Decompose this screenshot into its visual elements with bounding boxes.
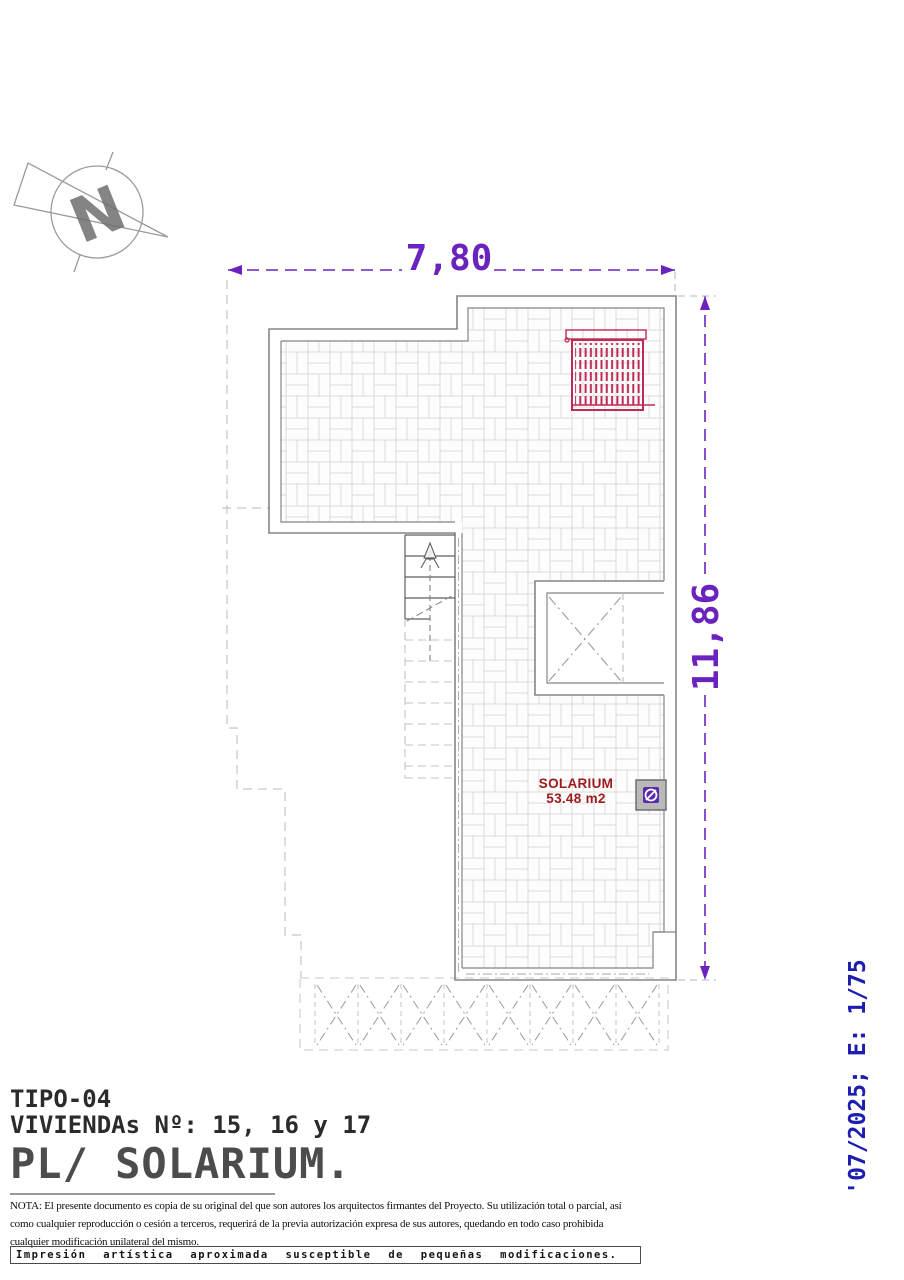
legal-note-line: como cualquier reproducción o cesión a t…	[10, 1216, 622, 1234]
legal-note: NOTA: El presente documento es copia de …	[10, 1198, 622, 1251]
dimension-height-label: 11,86	[686, 583, 727, 691]
type-label: TIPO-04	[10, 1086, 371, 1112]
disclaimer-text: Impresión artística aproximada susceptib…	[16, 1249, 618, 1261]
dimension-width: 7,80	[228, 238, 675, 294]
room-name: SOLARIUM	[539, 776, 613, 791]
north-arrow-icon: N	[14, 152, 168, 272]
title-rule	[10, 1193, 275, 1195]
disclaimer-bar: Impresión artística aproximada susceptib…	[10, 1246, 641, 1264]
legal-note-line: NOTA: El presente documento es copia de …	[10, 1198, 622, 1216]
plan-title: PL/ SOLARIUM.	[10, 1142, 371, 1186]
stairs	[405, 535, 455, 778]
room-label: SOLARIUM 53.48 m2	[539, 776, 613, 806]
floor-plan-sheet: 7,80 11,86 N SOLARIUM 53.48 m2 TIPO-04	[0, 0, 904, 1280]
dimension-width-label: 7,80	[406, 238, 493, 279]
north-letter: N	[60, 171, 135, 258]
room-area: 53.48 m2	[546, 791, 605, 806]
drain-icon	[636, 780, 666, 810]
trellis-band	[300, 978, 668, 1050]
dwellings-label: VIVIENDAs Nº: 15, 16 y 17	[10, 1112, 371, 1140]
dimension-height: 11,86	[678, 296, 727, 980]
patio-void-cross	[549, 593, 623, 683]
title-block: TIPO-04 VIVIENDAs Nº: 15, 16 y 17 PL/ SO…	[10, 1086, 371, 1195]
date-scale-note: '07/2025; E: 1/75	[845, 959, 871, 1194]
date-scale-text: '07/2025; E: 1/75	[845, 959, 871, 1194]
